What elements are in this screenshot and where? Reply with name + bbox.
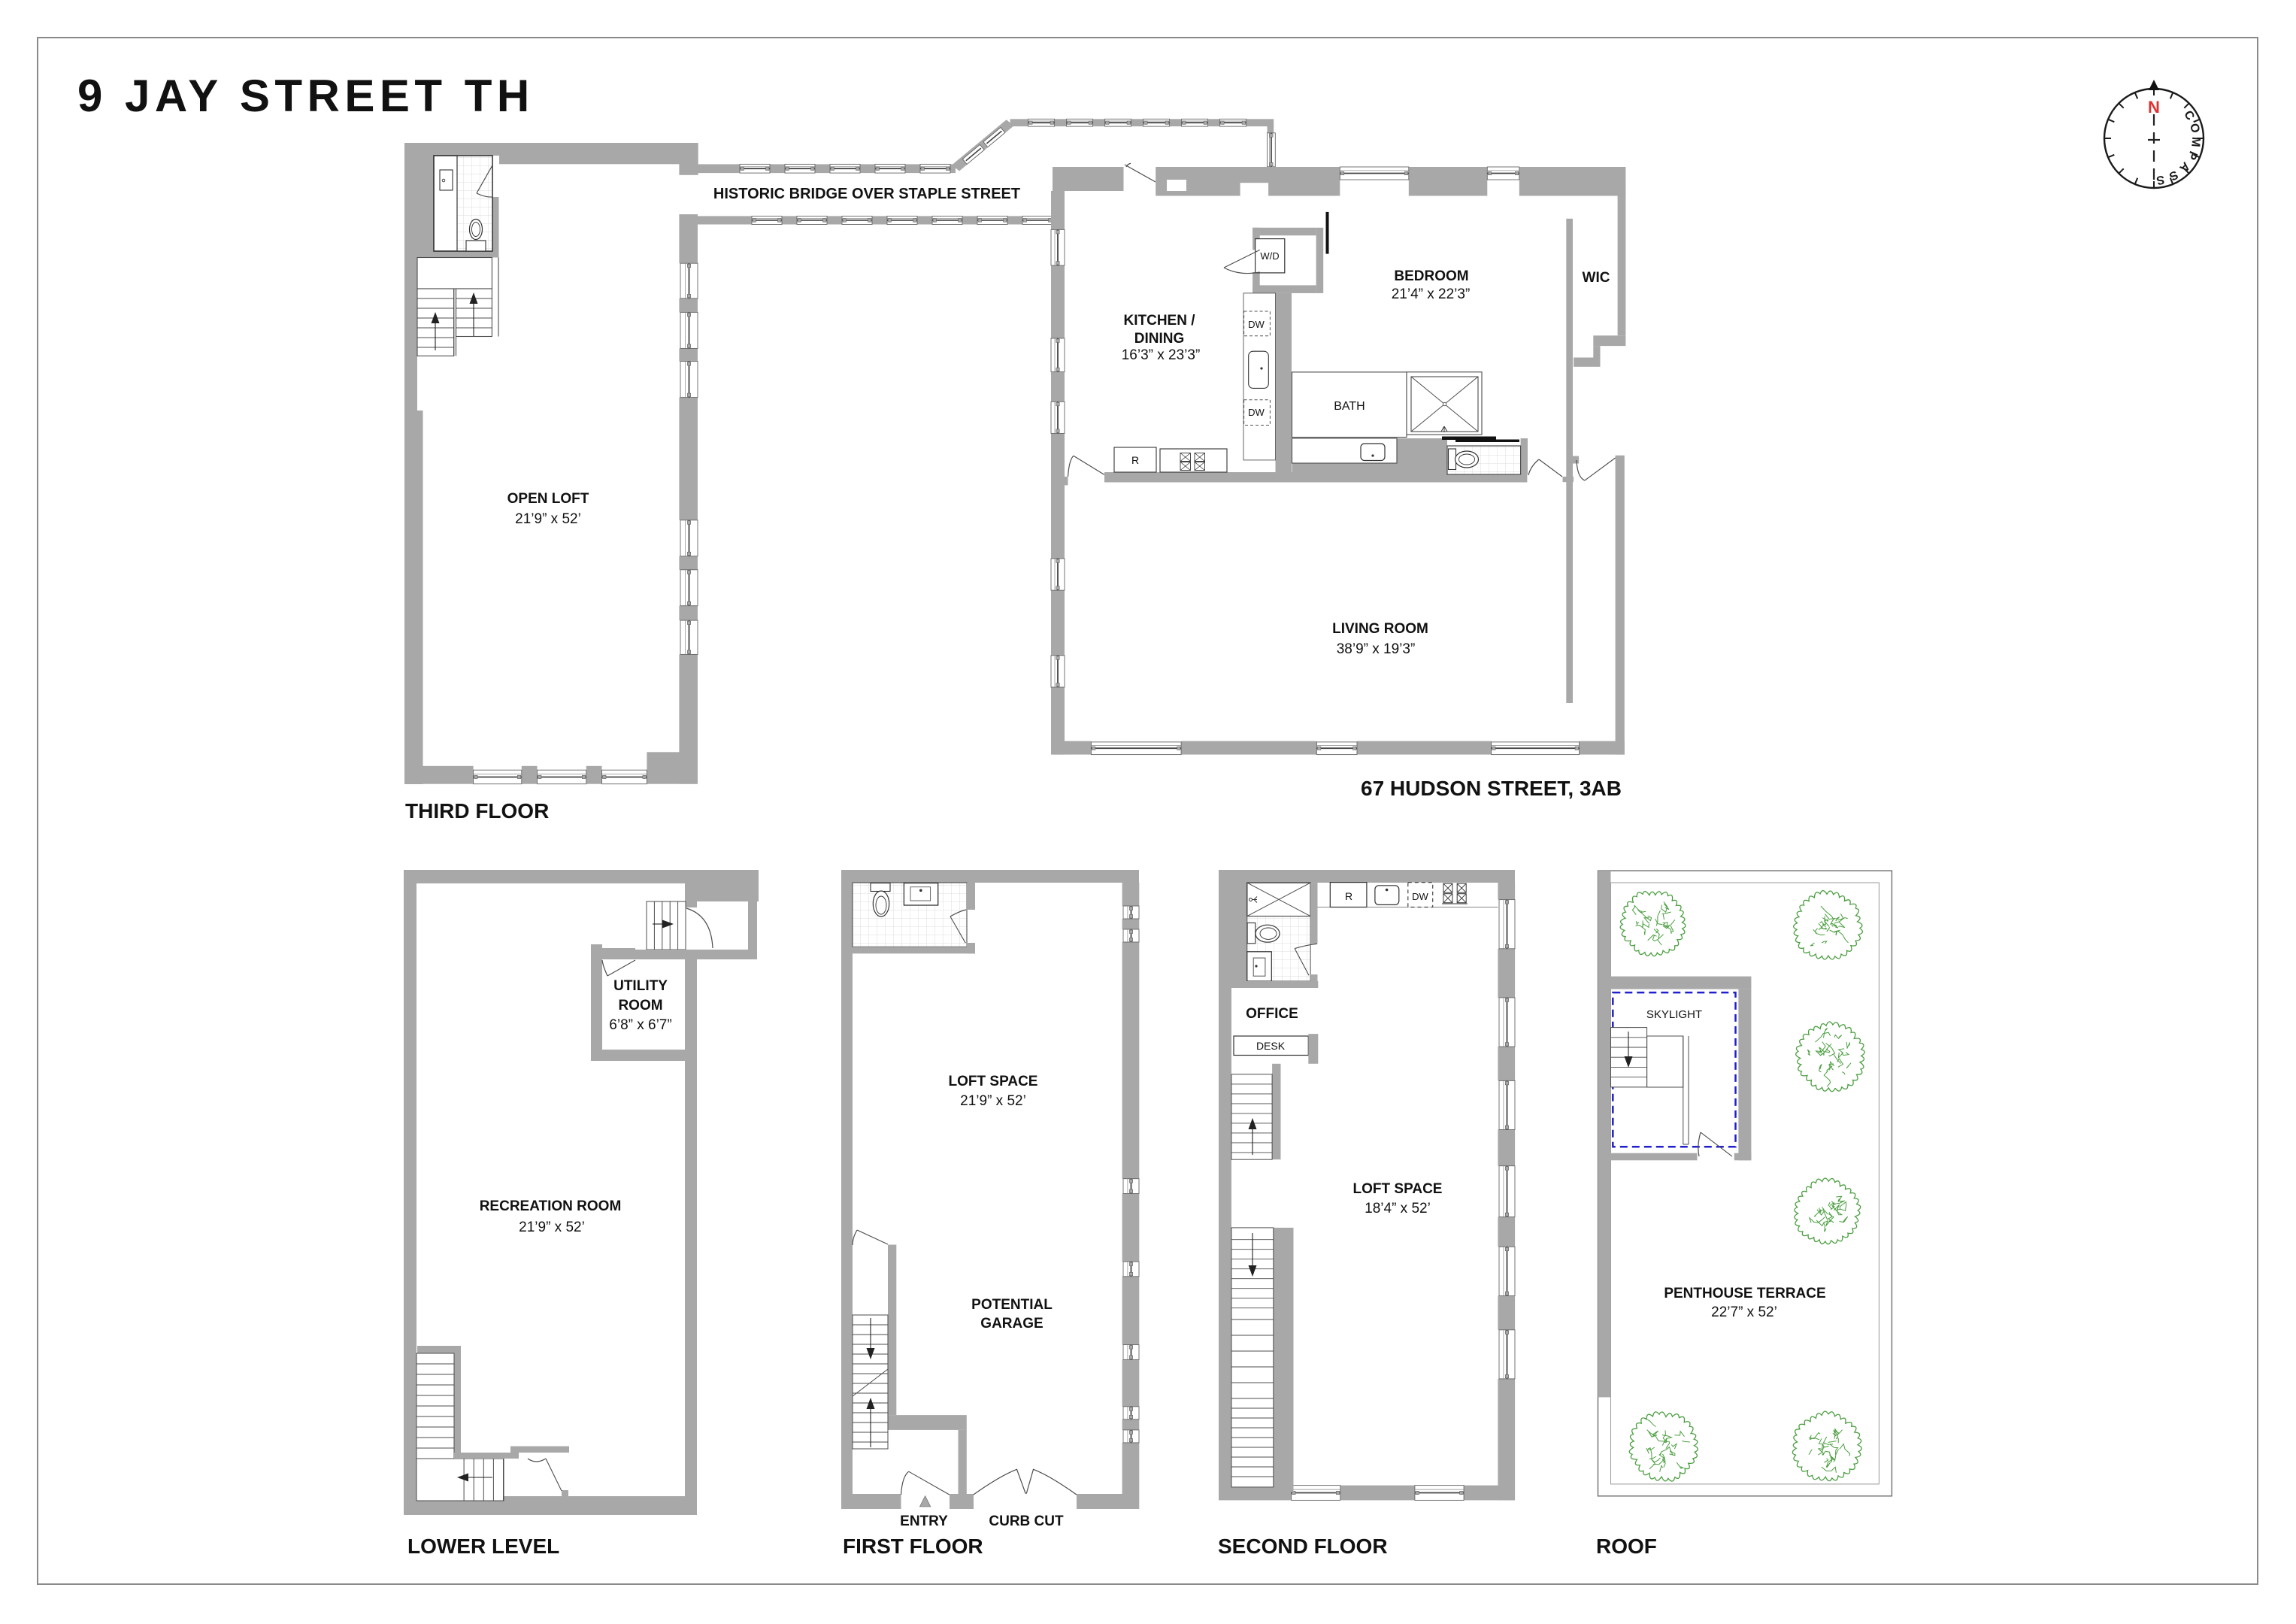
svg-text:DESK: DESK — [1256, 1040, 1286, 1052]
svg-text:M: M — [2188, 136, 2202, 147]
svg-text:6’8” x 6’7”: 6’8” x 6’7” — [609, 1017, 671, 1033]
svg-text:DW: DW — [1412, 891, 1428, 902]
svg-text:16’3” x 23’3”: 16’3” x 23’3” — [1122, 347, 1201, 363]
svg-text:GARAGE: GARAGE — [980, 1316, 1043, 1332]
svg-text:67 HUDSON STREET, 3AB: 67 HUDSON STREET, 3AB — [1361, 777, 1622, 800]
svg-text:DINING: DINING — [1134, 331, 1185, 347]
svg-text:PENTHOUSE TERRACE: PENTHOUSE TERRACE — [1664, 1286, 1825, 1301]
svg-text:HISTORIC BRIDGE OVER STAPLE ST: HISTORIC BRIDGE OVER STAPLE STREET — [713, 186, 1020, 202]
svg-text:LIVING ROOM: LIVING ROOM — [1332, 621, 1428, 637]
svg-text:38’9” x 19’3”: 38’9” x 19’3” — [1337, 641, 1416, 657]
svg-text:UTILITY: UTILITY — [613, 978, 668, 994]
svg-text:21’9” x 52’: 21’9” x 52’ — [519, 1220, 585, 1235]
svg-text:ROOM: ROOM — [618, 998, 662, 1013]
svg-text:LOFT SPACE: LOFT SPACE — [949, 1074, 1038, 1089]
svg-text:DW: DW — [1248, 407, 1265, 418]
svg-text:ROOF: ROOF — [1596, 1535, 1657, 1558]
svg-text:THIRD FLOOR: THIRD FLOOR — [405, 799, 549, 823]
svg-text:9 JAY STREET TH: 9 JAY STREET TH — [77, 71, 535, 121]
svg-text:BATH: BATH — [1334, 400, 1365, 413]
svg-text:SECOND FLOOR: SECOND FLOOR — [1218, 1535, 1388, 1558]
svg-text:R: R — [1131, 454, 1139, 466]
svg-text:KITCHEN /: KITCHEN / — [1124, 313, 1196, 329]
svg-text:LOWER LEVEL: LOWER LEVEL — [407, 1535, 559, 1558]
svg-text:OFFICE: OFFICE — [1246, 1006, 1298, 1022]
svg-text:18’4” x 52’: 18’4” x 52’ — [1365, 1201, 1431, 1216]
svg-text:LOFT SPACE: LOFT SPACE — [1353, 1181, 1443, 1197]
svg-text:ENTRY: ENTRY — [900, 1513, 948, 1529]
svg-text:OPEN LOFT: OPEN LOFT — [507, 491, 589, 507]
svg-text:W/D: W/D — [1260, 250, 1279, 262]
svg-text:POTENTIAL: POTENTIAL — [971, 1297, 1053, 1313]
svg-text:DW: DW — [1248, 319, 1265, 330]
svg-text:CURB CUT: CURB CUT — [989, 1513, 1064, 1529]
svg-text:22’7” x 52’: 22’7” x 52’ — [1711, 1304, 1777, 1320]
svg-text:21’9” x 52’: 21’9” x 52’ — [960, 1093, 1026, 1109]
svg-text:SKYLIGHT: SKYLIGHT — [1646, 1008, 1702, 1021]
svg-text:BEDROOM: BEDROOM — [1394, 268, 1468, 284]
svg-text:N: N — [2148, 98, 2160, 117]
svg-text:FIRST FLOOR: FIRST FLOOR — [843, 1535, 983, 1558]
svg-text:WIC: WIC — [1583, 270, 1610, 286]
svg-text:21’9” x 52’: 21’9” x 52’ — [515, 511, 581, 527]
svg-text:21’4” x 22’3”: 21’4” x 22’3” — [1392, 286, 1471, 302]
svg-text:R: R — [1345, 890, 1352, 902]
svg-text:RECREATION ROOM: RECREATION ROOM — [480, 1198, 622, 1214]
